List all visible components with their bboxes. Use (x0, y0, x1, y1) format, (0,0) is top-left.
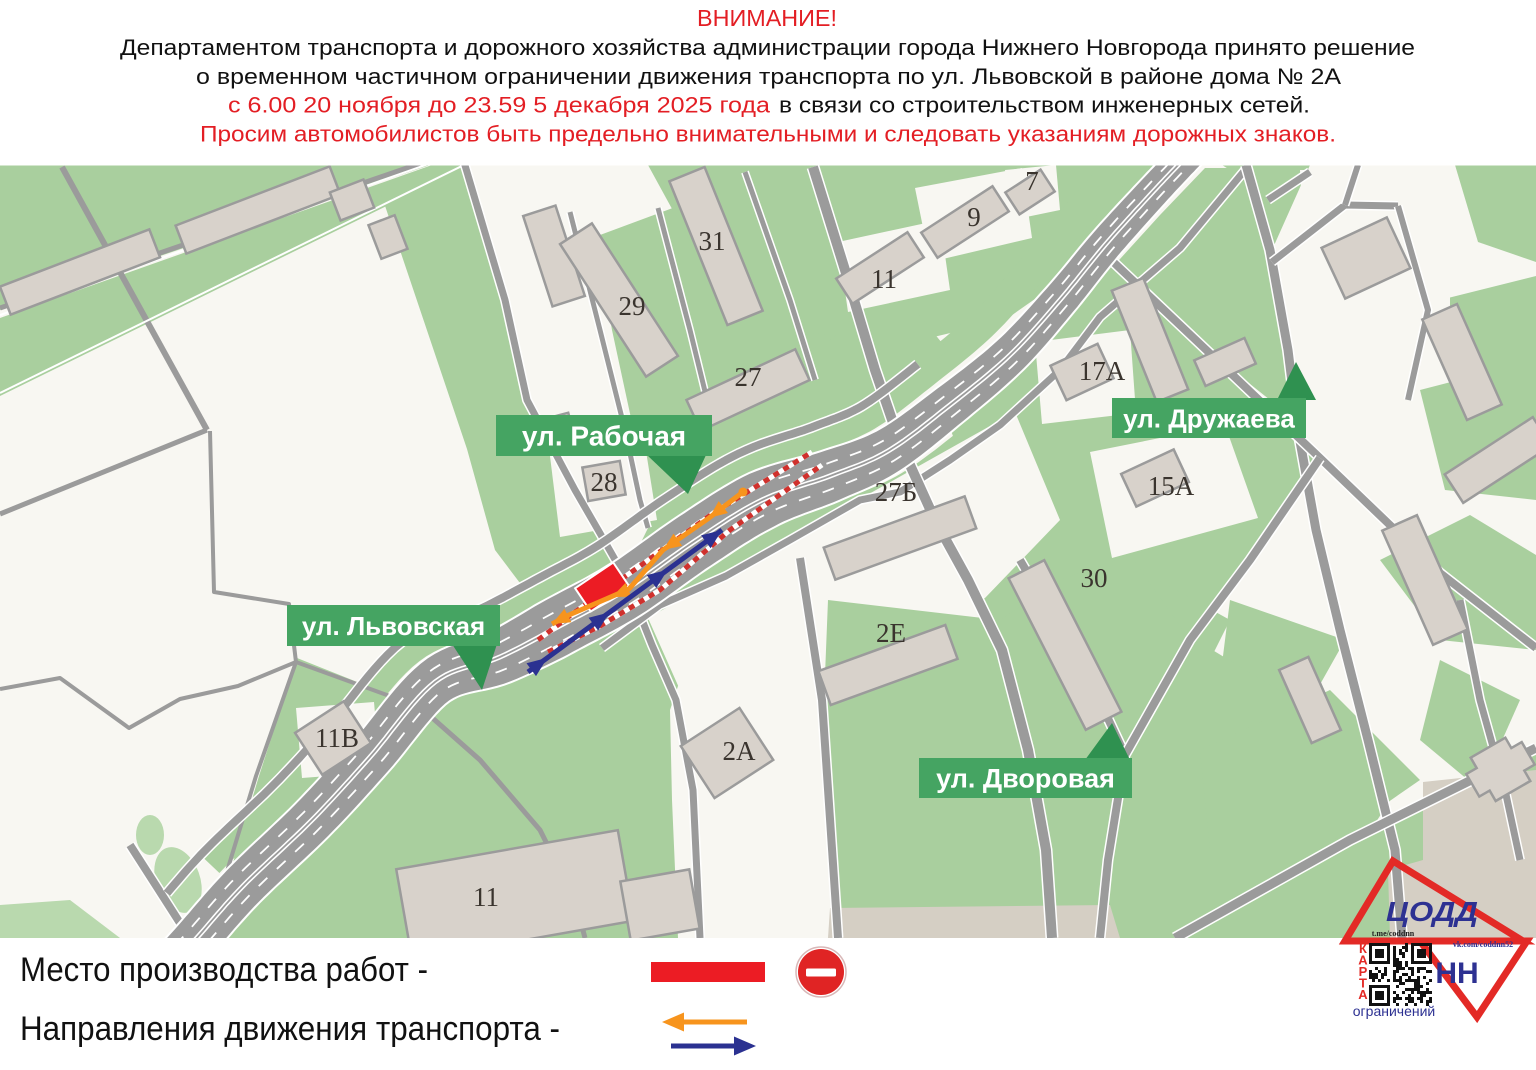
svg-text:17А: 17А (1079, 356, 1126, 386)
svg-text:30: 30 (1081, 563, 1108, 593)
svg-text:Департаментом транспорта и дор: Департаментом транспорта и дорожного хоз… (120, 35, 1415, 60)
svg-text:2А: 2А (723, 736, 757, 766)
svg-text:t.me/coddnn: t.me/coddnn (1372, 929, 1415, 938)
svg-text:28: 28 (591, 467, 618, 497)
svg-text:11: 11 (473, 882, 499, 912)
svg-text:Направления движения транспорт: Направления движения транспорта - (20, 1010, 560, 1048)
svg-text:с 6.00 20 ноября до 23.59 5 де: с 6.00 20 ноября до 23.59 5 декабря 2025… (228, 93, 771, 118)
svg-text:ул. Дворовая: ул. Дворовая (936, 764, 1115, 794)
svg-text:vk.com/coddnn52: vk.com/coddnn52 (1453, 940, 1513, 949)
svg-text:29: 29 (619, 291, 646, 321)
svg-text:15А: 15А (1148, 471, 1195, 501)
svg-text:27Б: 27Б (875, 477, 918, 507)
svg-text:НН: НН (1435, 957, 1478, 990)
svg-text:11: 11 (871, 264, 897, 294)
svg-text:ВНИМАНИЕ!: ВНИМАНИЕ! (697, 5, 837, 31)
svg-text:11В: 11В (315, 723, 359, 753)
svg-text:31: 31 (699, 226, 726, 256)
svg-text:в связи со строительством инже: в связи со строительством инженерных сет… (779, 93, 1310, 118)
svg-text:ул. Рабочая: ул. Рабочая (522, 421, 686, 452)
svg-text:о временном частичном ограниче: о временном частичном ограничении движен… (196, 64, 1341, 89)
svg-text:ЦОДД: ЦОДД (1386, 896, 1478, 927)
svg-text:ограничений: ограничений (1353, 1003, 1435, 1019)
svg-text:9: 9 (967, 202, 981, 232)
svg-text:ул. Львовская: ул. Львовская (302, 611, 485, 641)
svg-text:2Е: 2Е (876, 618, 906, 648)
svg-text:ул. Дружаева: ул. Дружаева (1123, 403, 1295, 433)
svg-text:Просим автомобилистов быть пре: Просим автомобилистов быть предельно вни… (200, 122, 1336, 147)
svg-text:27: 27 (735, 362, 762, 392)
svg-text:7: 7 (1025, 166, 1039, 196)
svg-text:Место производства работ -: Место производства работ - (20, 951, 428, 989)
svg-text:А: А (1358, 987, 1368, 1002)
